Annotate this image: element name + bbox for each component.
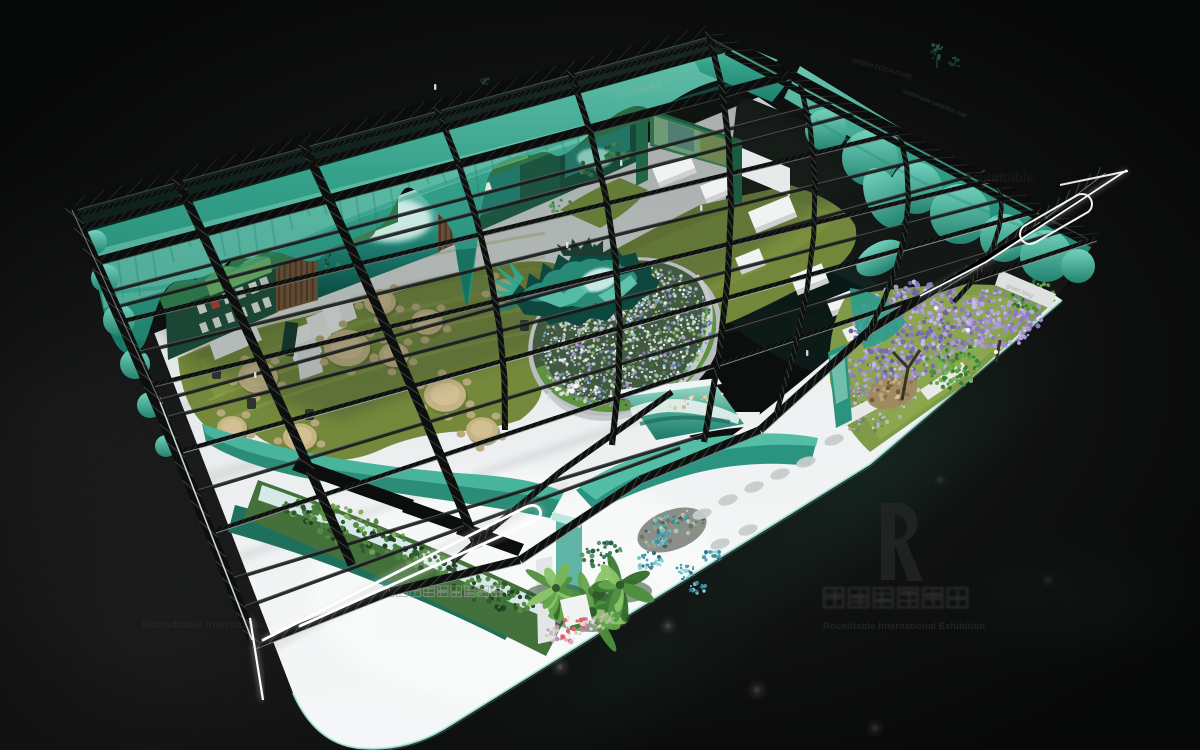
svg-text:Roundtable International Exhib: Roundtable International Exhibition — [823, 621, 985, 631]
svg-text:Roundtable International: Roundtable International — [142, 619, 272, 631]
svg-text:Roundtable: Roundtable — [962, 170, 1034, 185]
